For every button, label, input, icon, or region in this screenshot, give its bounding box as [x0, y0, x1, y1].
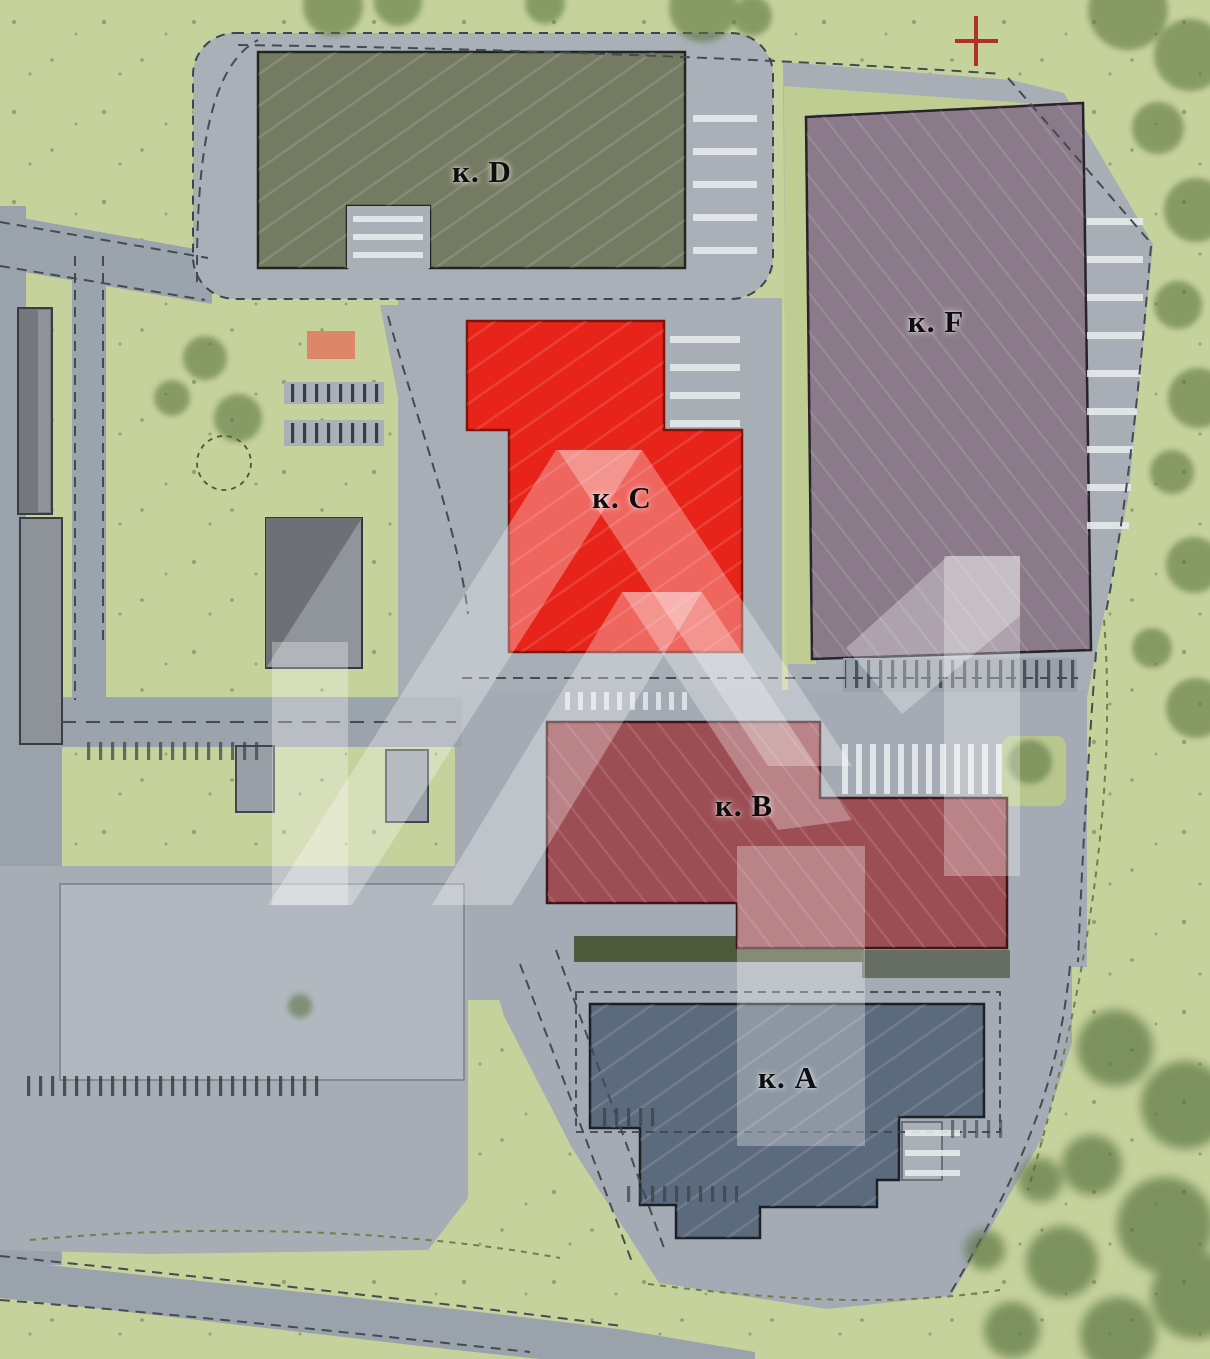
- building-b-label[interactable]: к. B: [715, 788, 773, 824]
- building-c-label[interactable]: к. C: [592, 480, 652, 516]
- building-f-label[interactable]: к. F: [908, 304, 964, 340]
- building-a-label[interactable]: к. A: [758, 1060, 818, 1096]
- building-d-label[interactable]: к. D: [452, 154, 512, 190]
- rect-highlight-icon: [307, 331, 355, 359]
- hedge-row: [862, 950, 1010, 978]
- site-plan-svg: [0, 0, 1210, 1359]
- site-plan-map: к. D к. F к. C к. B к. A: [0, 0, 1210, 1359]
